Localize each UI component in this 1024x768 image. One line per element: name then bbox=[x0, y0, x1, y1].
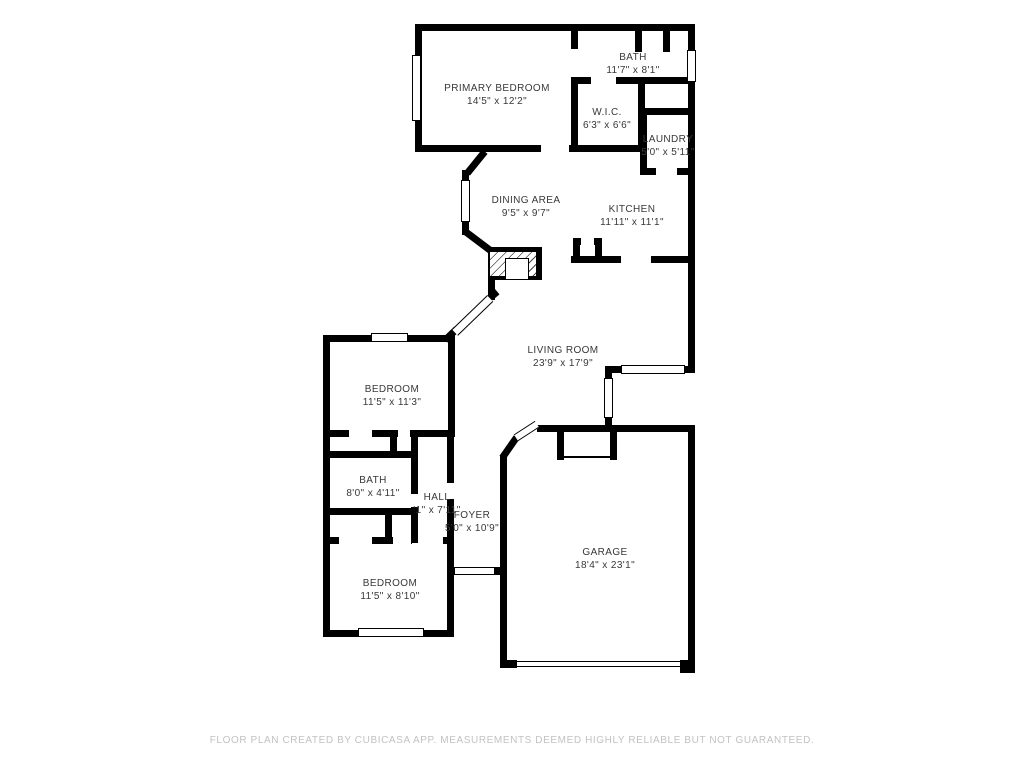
wall bbox=[578, 77, 590, 84]
door-opening bbox=[590, 77, 617, 84]
wall bbox=[323, 335, 330, 637]
door-opening bbox=[655, 168, 678, 175]
wall bbox=[411, 430, 455, 437]
closet-wall bbox=[330, 451, 411, 458]
wall bbox=[645, 108, 688, 115]
room-label-bath: BATH 11'7" x 8'1" bbox=[606, 51, 659, 77]
room-dims: 11'11" x 11'1" bbox=[600, 216, 664, 229]
wall bbox=[448, 342, 455, 437]
room-name: BEDROOM bbox=[363, 383, 422, 396]
wall bbox=[500, 455, 507, 668]
room-label-garage: GARAGE 18'4" x 23'1" bbox=[575, 546, 635, 572]
room-name: LIVING ROOM bbox=[527, 344, 598, 357]
wall bbox=[678, 168, 695, 175]
room-dims: 18'4" x 23'1" bbox=[575, 559, 635, 572]
wall bbox=[571, 78, 578, 152]
room-name: BATH bbox=[606, 51, 659, 64]
room-label-bedroom-1: BEDROOM 11'5" x 11'3" bbox=[363, 383, 422, 409]
wall bbox=[617, 77, 695, 84]
room-name: DINING AREA bbox=[492, 194, 561, 207]
utility-nook-wall bbox=[557, 432, 564, 460]
footer-disclaimer: FLOOR PLAN CREATED BY CUBICASA APP. MEAS… bbox=[0, 735, 1024, 746]
door-opening bbox=[540, 145, 570, 152]
room-label-dining-area: DINING AREA 9'5" x 9'7" bbox=[492, 194, 561, 220]
room-name: W.I.C. bbox=[583, 106, 631, 119]
room-label-wic: W.I.C. 6'3" x 6'6" bbox=[583, 106, 631, 132]
room-label-laundry: LAUNDRY 5'0" x 5'11" bbox=[641, 133, 694, 159]
room-name: BEDROOM bbox=[360, 577, 419, 590]
pantry-door bbox=[580, 238, 595, 245]
room-name: KITCHEN bbox=[600, 203, 664, 216]
room-label-kitchen: KITCHEN 11'11" x 11'1" bbox=[600, 203, 664, 229]
room-name: BATH bbox=[346, 474, 399, 487]
wall bbox=[447, 437, 454, 482]
wall bbox=[323, 537, 338, 544]
room-name: LAUNDRY bbox=[641, 133, 694, 146]
room-label-living-room: LIVING ROOM 23'9" x 17'9" bbox=[527, 344, 598, 370]
wall bbox=[570, 145, 645, 152]
pass-through-opening bbox=[620, 256, 652, 263]
pantry-wall bbox=[573, 238, 580, 263]
room-dims: 11'5" x 8'10" bbox=[360, 590, 419, 603]
garage-corner bbox=[500, 660, 517, 668]
shower-wall bbox=[663, 31, 670, 52]
wall bbox=[640, 168, 655, 175]
room-dims: 8'0" x 4'11" bbox=[346, 487, 399, 500]
wall bbox=[495, 567, 507, 575]
wall bbox=[571, 24, 578, 48]
door-opening bbox=[571, 48, 578, 78]
window bbox=[604, 378, 613, 418]
room-dims: 5'0" x 5'11" bbox=[641, 146, 694, 159]
wall bbox=[415, 145, 540, 152]
wall bbox=[373, 430, 397, 437]
room-name: GARAGE bbox=[575, 546, 635, 559]
closet-wall bbox=[390, 437, 397, 458]
window bbox=[371, 333, 408, 342]
utility-nook-wall bbox=[610, 432, 617, 460]
wall bbox=[411, 437, 418, 493]
utility-nook-line bbox=[564, 456, 610, 458]
door-opening-angled bbox=[514, 421, 539, 441]
sliding-door-angled bbox=[452, 295, 493, 336]
window bbox=[687, 50, 696, 82]
wall bbox=[415, 24, 695, 31]
room-dims: 11'7" x 8'1" bbox=[606, 64, 659, 77]
wall bbox=[323, 430, 348, 437]
wall bbox=[373, 537, 392, 544]
room-dims: 9'5" x 9'7" bbox=[492, 207, 561, 220]
room-name: FOYER bbox=[445, 509, 499, 522]
window bbox=[461, 180, 470, 222]
wall bbox=[537, 425, 695, 432]
room-dims: 11'5" x 11'3" bbox=[363, 396, 422, 409]
room-dims: 6'3" x 6'6" bbox=[583, 119, 631, 132]
room-label-bath-2: BATH 8'0" x 4'11" bbox=[346, 474, 399, 500]
room-label-primary-bedroom: PRIMARY BEDROOM 14'5" x 12'2" bbox=[444, 82, 550, 108]
wall bbox=[688, 425, 695, 673]
room-label-bedroom-2: BEDROOM 11'5" x 8'10" bbox=[360, 577, 419, 603]
garage-door bbox=[517, 661, 680, 667]
door-opening bbox=[397, 430, 411, 437]
room-name: HALL bbox=[413, 491, 460, 504]
shower-wall bbox=[635, 31, 642, 52]
window bbox=[358, 628, 424, 637]
garage-corner bbox=[680, 660, 695, 673]
closet-door bbox=[348, 430, 373, 437]
room-dims: 5'0" x 10'9" bbox=[445, 522, 499, 535]
room-dims: 23'9" x 17'9" bbox=[527, 357, 598, 370]
front-door bbox=[454, 567, 495, 575]
fireplace-firebox bbox=[505, 258, 529, 280]
closet-wall bbox=[385, 515, 392, 537]
closet-door bbox=[338, 537, 373, 544]
pantry-wall bbox=[595, 238, 602, 263]
floor-plan-canvas: PRIMARY BEDROOM 14'5" x 12'2" BATH 11'7"… bbox=[0, 0, 1024, 768]
room-dims: 14'5" x 12'2" bbox=[444, 95, 550, 108]
window bbox=[412, 55, 421, 121]
wall bbox=[323, 508, 415, 515]
closet-door bbox=[392, 537, 412, 544]
room-label-foyer: FOYER 5'0" x 10'9" bbox=[445, 509, 499, 535]
window bbox=[621, 365, 685, 374]
room-name: PRIMARY BEDROOM bbox=[444, 82, 550, 95]
wall bbox=[652, 256, 695, 263]
